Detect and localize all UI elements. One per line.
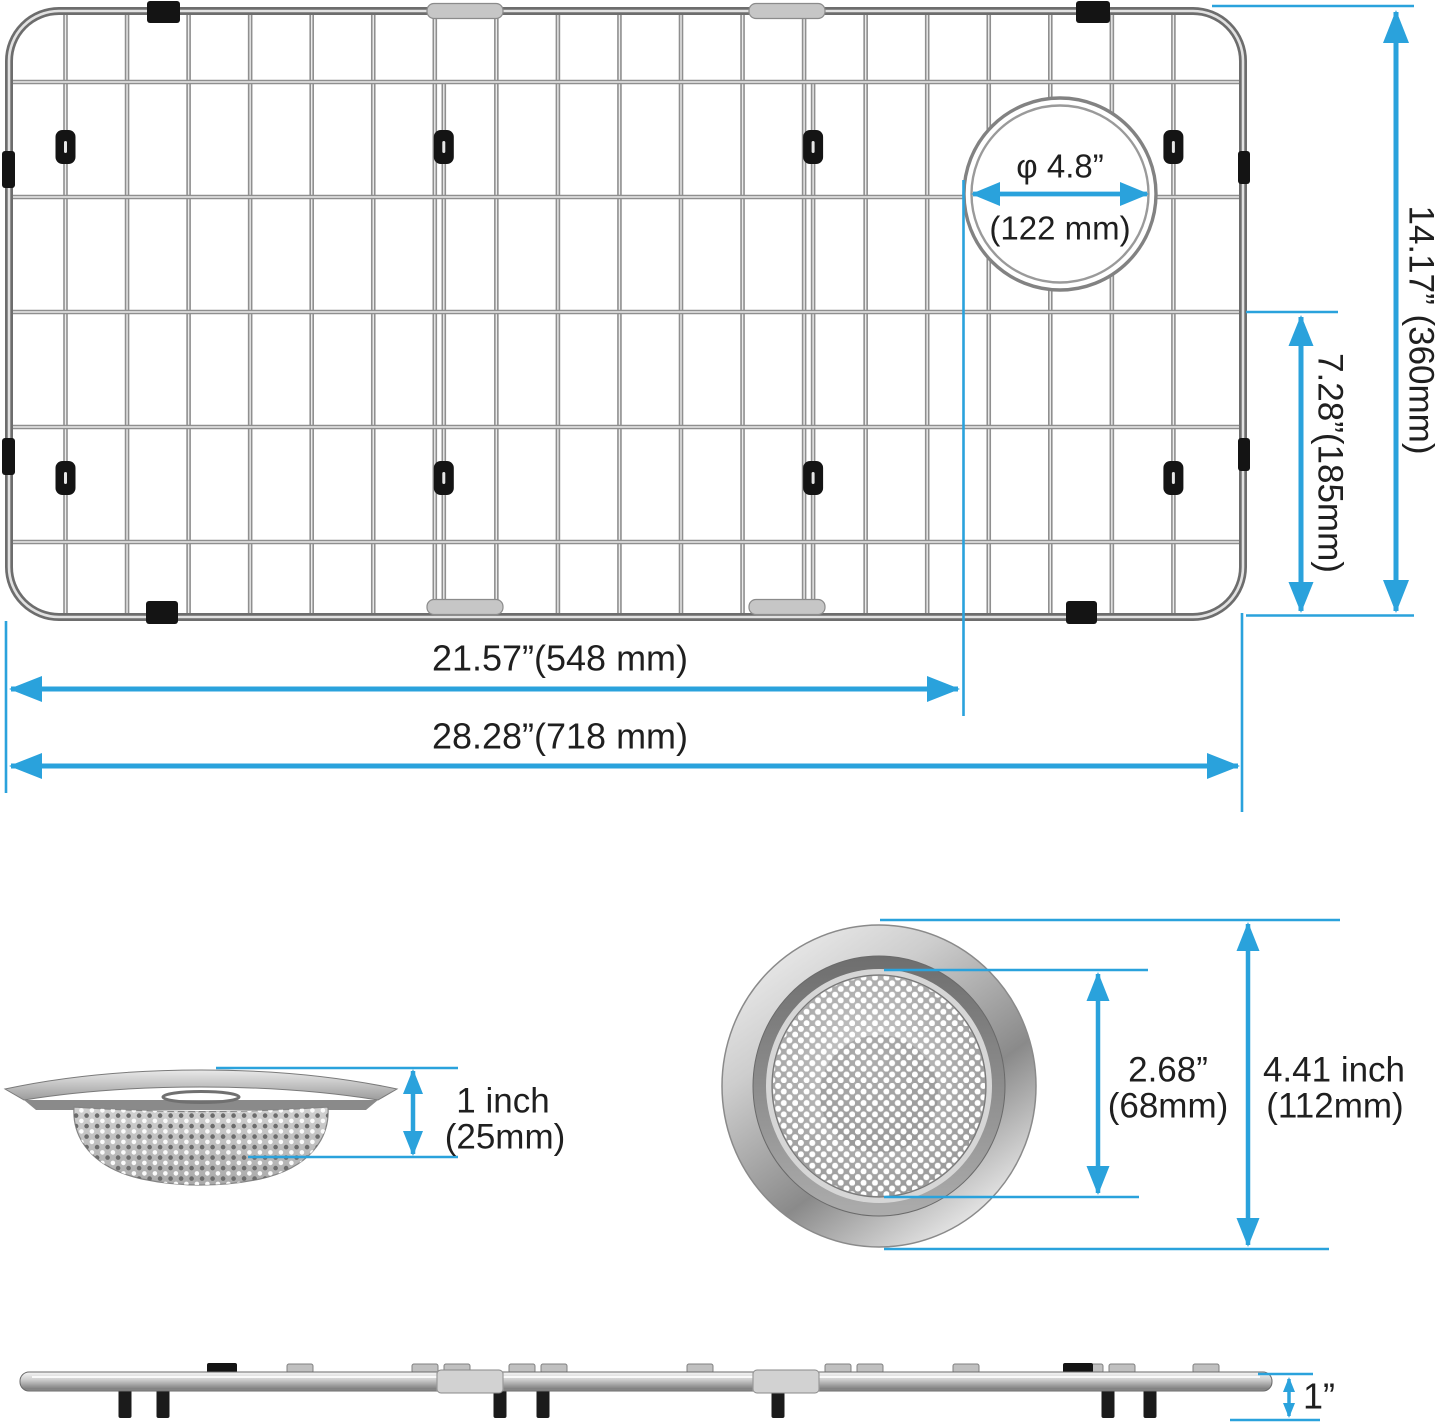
grid-inner-height-label: 7.28”(185mm): [1311, 353, 1350, 573]
outer-diameter-mm-label: (112mm): [1266, 1087, 1403, 1126]
strainer-rim: [5, 1070, 397, 1100]
strainer-side-view: [5, 1070, 397, 1185]
hole-diameter-inch-label: φ 4.8”: [1016, 148, 1103, 185]
profile-height-label: 1”: [1303, 1376, 1335, 1417]
strainer-top-view: [722, 925, 1036, 1247]
strainer-mesh-holes: [773, 976, 985, 1196]
drain-offset-label: 21.57”(548 mm): [432, 638, 688, 679]
grid-side-profile: [20, 1363, 1272, 1418]
strainer-height-mm-label: (25mm): [445, 1118, 566, 1157]
frame-sleeves: [427, 4, 825, 615]
profile-bar: [20, 1372, 1272, 1391]
product-dimension-diagram: φ 4.8” (122 mm) 14.17” (360mm) 7.28”(185…: [0, 0, 1445, 1426]
hole-diameter-mm-label: (122 mm): [989, 210, 1130, 247]
strainer-basket-perforations: [74, 1107, 328, 1185]
outer-diameter-inch-label: 4.41 inch: [1263, 1051, 1405, 1090]
dimension-annotations: [6, 6, 1414, 1420]
strainer-height-inch-label: 1 inch: [456, 1082, 549, 1121]
mesh-diameter-mm-label: (68mm): [1108, 1087, 1229, 1126]
grid-width-label: 28.28”(718 mm): [432, 716, 688, 757]
grid-height-label: 14.17” (360mm): [1402, 206, 1441, 455]
diagram-canvas: φ 4.8” (122 mm) 14.17” (360mm) 7.28”(185…: [0, 0, 1445, 1426]
mesh-diameter-inch-label: 2.68”: [1128, 1051, 1208, 1090]
